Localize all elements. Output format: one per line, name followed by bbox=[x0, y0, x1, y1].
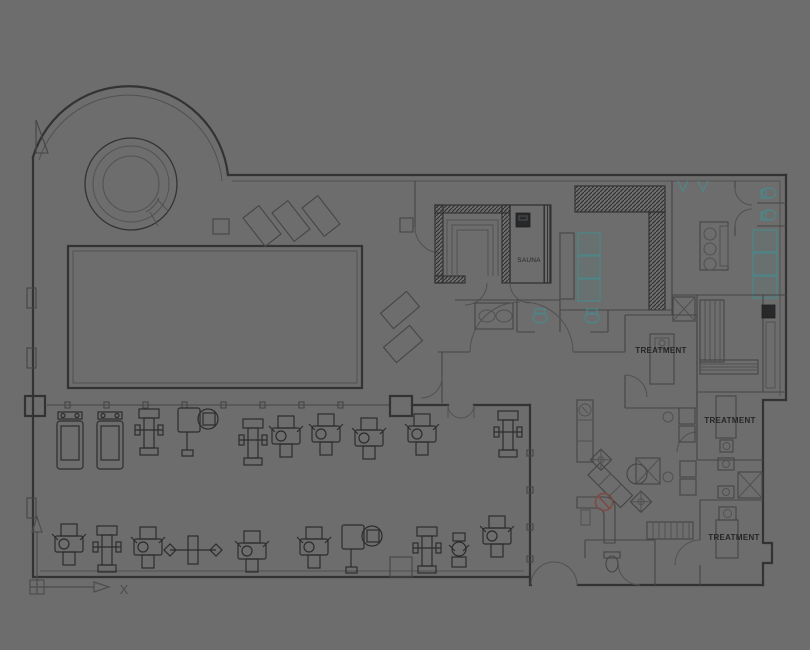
mens-wc bbox=[678, 181, 786, 298]
whirlpool-spa bbox=[85, 138, 177, 230]
gym-double-door bbox=[448, 405, 474, 418]
gym-equipment-weight-machine bbox=[269, 416, 303, 457]
gym-equipment-weight-machine bbox=[297, 527, 331, 568]
gym-equipment-weight-tower bbox=[494, 411, 522, 457]
swimming-pool bbox=[68, 246, 362, 388]
gym-equipment-barbell-bench bbox=[164, 536, 222, 564]
locker bbox=[578, 233, 600, 255]
floor-plan-drawing[interactable]: SAUNA bbox=[0, 0, 810, 650]
toilet bbox=[761, 210, 776, 220]
side-table bbox=[663, 412, 673, 422]
wc-room bbox=[585, 522, 693, 585]
gym-equipment-weight-tower bbox=[413, 527, 441, 573]
pool-loungers bbox=[243, 196, 422, 363]
gym-equipment-treadmill bbox=[57, 412, 83, 469]
sink bbox=[496, 310, 512, 322]
door-arc bbox=[618, 563, 640, 585]
sofa bbox=[588, 463, 633, 508]
treatment-3-label: TREATMENT bbox=[708, 533, 759, 542]
corridor-double-door bbox=[470, 302, 573, 352]
stool bbox=[663, 472, 673, 482]
gym-equipment-cable-machine bbox=[342, 525, 382, 573]
locker bbox=[753, 253, 777, 275]
wc-block bbox=[455, 300, 672, 332]
pier bbox=[400, 218, 413, 232]
round-table bbox=[627, 464, 647, 484]
corner-brace bbox=[36, 120, 48, 153]
toilet bbox=[585, 309, 599, 323]
urinal bbox=[698, 181, 708, 191]
armchair bbox=[680, 479, 696, 495]
ucs-x-label: X bbox=[120, 582, 129, 597]
gym-equipment-stepper bbox=[449, 533, 469, 567]
deck-table bbox=[213, 219, 229, 234]
building-shell bbox=[27, 86, 786, 585]
changing-room bbox=[560, 181, 672, 315]
door-arc bbox=[465, 283, 487, 305]
telephone bbox=[581, 510, 590, 525]
sauna-room: SAUNA bbox=[510, 205, 551, 303]
shaft-and-stairs bbox=[672, 295, 786, 408]
treatment-room-1: TREATMENT bbox=[625, 315, 697, 408]
stool bbox=[719, 507, 736, 520]
urinal bbox=[678, 181, 688, 191]
steam-benches bbox=[447, 220, 498, 276]
door-arc bbox=[421, 377, 442, 398]
utility-boxes bbox=[636, 458, 762, 498]
sink bbox=[704, 228, 716, 240]
sink-counter bbox=[475, 303, 513, 329]
locker bbox=[578, 256, 600, 278]
column bbox=[390, 396, 412, 416]
end-table bbox=[630, 491, 651, 512]
gym-equipment-weight-machine bbox=[480, 516, 514, 557]
gym-equipment-weight-tower bbox=[239, 419, 267, 465]
treatment-room-3: TREATMENT bbox=[675, 500, 763, 585]
corridor bbox=[421, 302, 625, 403]
lounge-reception bbox=[577, 400, 696, 585]
gym-equipment-cable-machine bbox=[178, 408, 218, 456]
end-table bbox=[590, 449, 611, 470]
x-axis-arrow bbox=[94, 582, 109, 592]
stall-doors bbox=[735, 188, 752, 226]
door-arc bbox=[675, 540, 700, 565]
treatment-1-label: TREATMENT bbox=[635, 346, 686, 355]
massage-table bbox=[650, 334, 674, 384]
toilet bbox=[533, 309, 547, 323]
gym-equipment-layer bbox=[52, 408, 522, 573]
armchair bbox=[680, 461, 696, 477]
gym-equipment-weight-machine bbox=[405, 414, 439, 455]
handrail-panel bbox=[766, 322, 775, 388]
locker bbox=[578, 279, 600, 301]
ucs-icon: X bbox=[30, 517, 129, 597]
gym-equipment-weight-machine bbox=[309, 414, 343, 455]
toilet bbox=[761, 188, 776, 198]
armchair bbox=[679, 408, 695, 424]
equipment-box bbox=[762, 305, 775, 318]
door-arc bbox=[625, 375, 647, 397]
shelf-cabinet bbox=[647, 522, 693, 539]
gym-equipment-weight-tower bbox=[93, 526, 121, 572]
sink bbox=[704, 258, 716, 270]
stool bbox=[720, 440, 733, 452]
gym-equipment-weight-machine bbox=[235, 531, 269, 572]
cad-viewport[interactable]: SAUNA bbox=[0, 0, 810, 650]
treatment-wing: TREATMENT TREATMENT bbox=[625, 295, 786, 585]
gym-equipment-treadmill bbox=[97, 412, 123, 469]
column bbox=[25, 396, 45, 416]
steam-room bbox=[435, 205, 510, 305]
entrance-double-door bbox=[531, 562, 577, 585]
gym-equipment-weight-machine bbox=[352, 418, 386, 459]
sauna-label: SAUNA bbox=[517, 257, 541, 264]
gym-equipment-weight-machine bbox=[131, 527, 165, 568]
gym-equipment-weight-machine bbox=[52, 524, 86, 565]
sink bbox=[704, 243, 716, 255]
bottom-wall-closet bbox=[390, 557, 412, 577]
treatment-2-label: TREATMENT bbox=[704, 416, 755, 425]
locker bbox=[753, 230, 777, 252]
bench bbox=[560, 233, 574, 299]
gym-equipment-weight-tower bbox=[135, 409, 163, 455]
toilet-plan bbox=[604, 552, 620, 572]
